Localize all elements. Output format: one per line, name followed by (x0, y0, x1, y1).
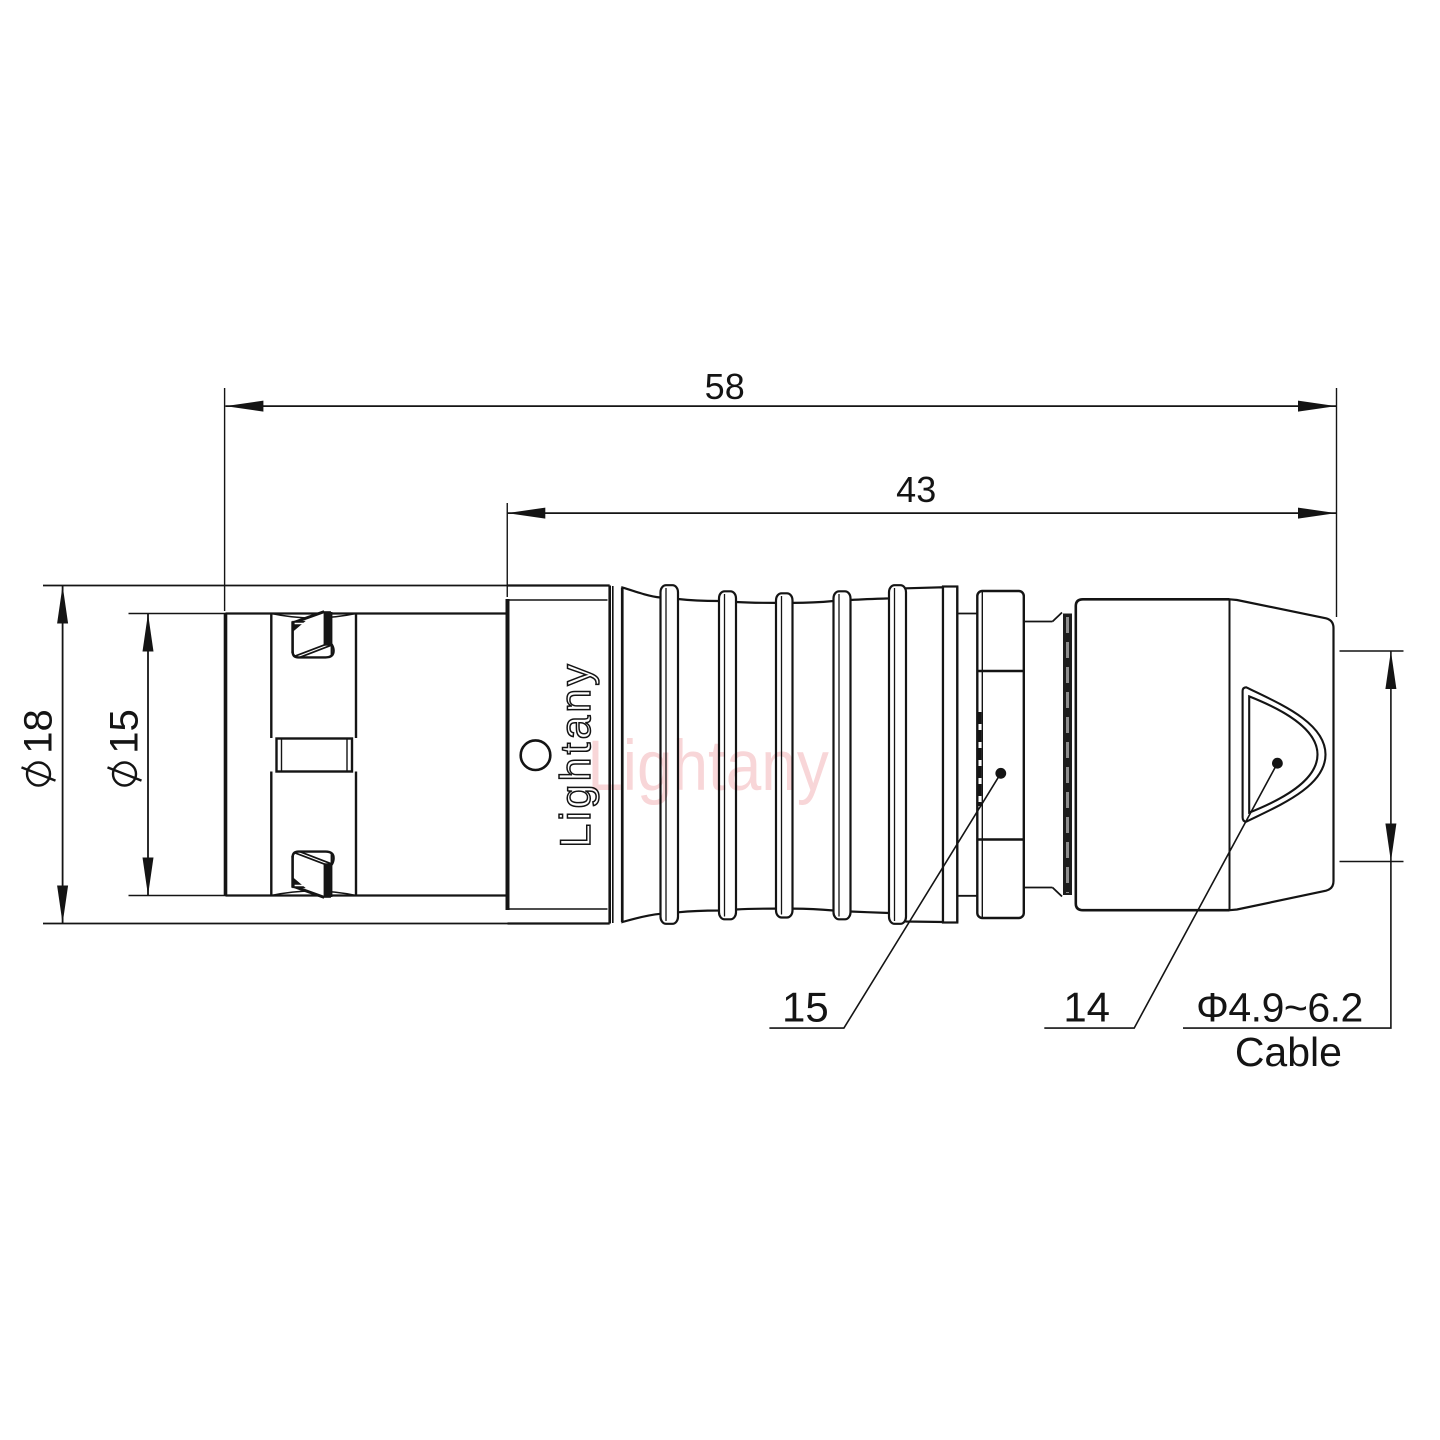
svg-text:Lightany: Lightany (587, 727, 829, 806)
svg-text:43: 43 (896, 469, 936, 510)
svg-text:15: 15 (103, 709, 147, 754)
svg-text:18: 18 (17, 709, 61, 754)
svg-text:14: 14 (1063, 984, 1110, 1031)
svg-text:58: 58 (705, 366, 745, 407)
svg-text:Cable: Cable (1235, 1029, 1342, 1075)
svg-text:15: 15 (782, 984, 829, 1031)
svg-text:Φ4.9~6.2: Φ4.9~6.2 (1196, 985, 1363, 1031)
